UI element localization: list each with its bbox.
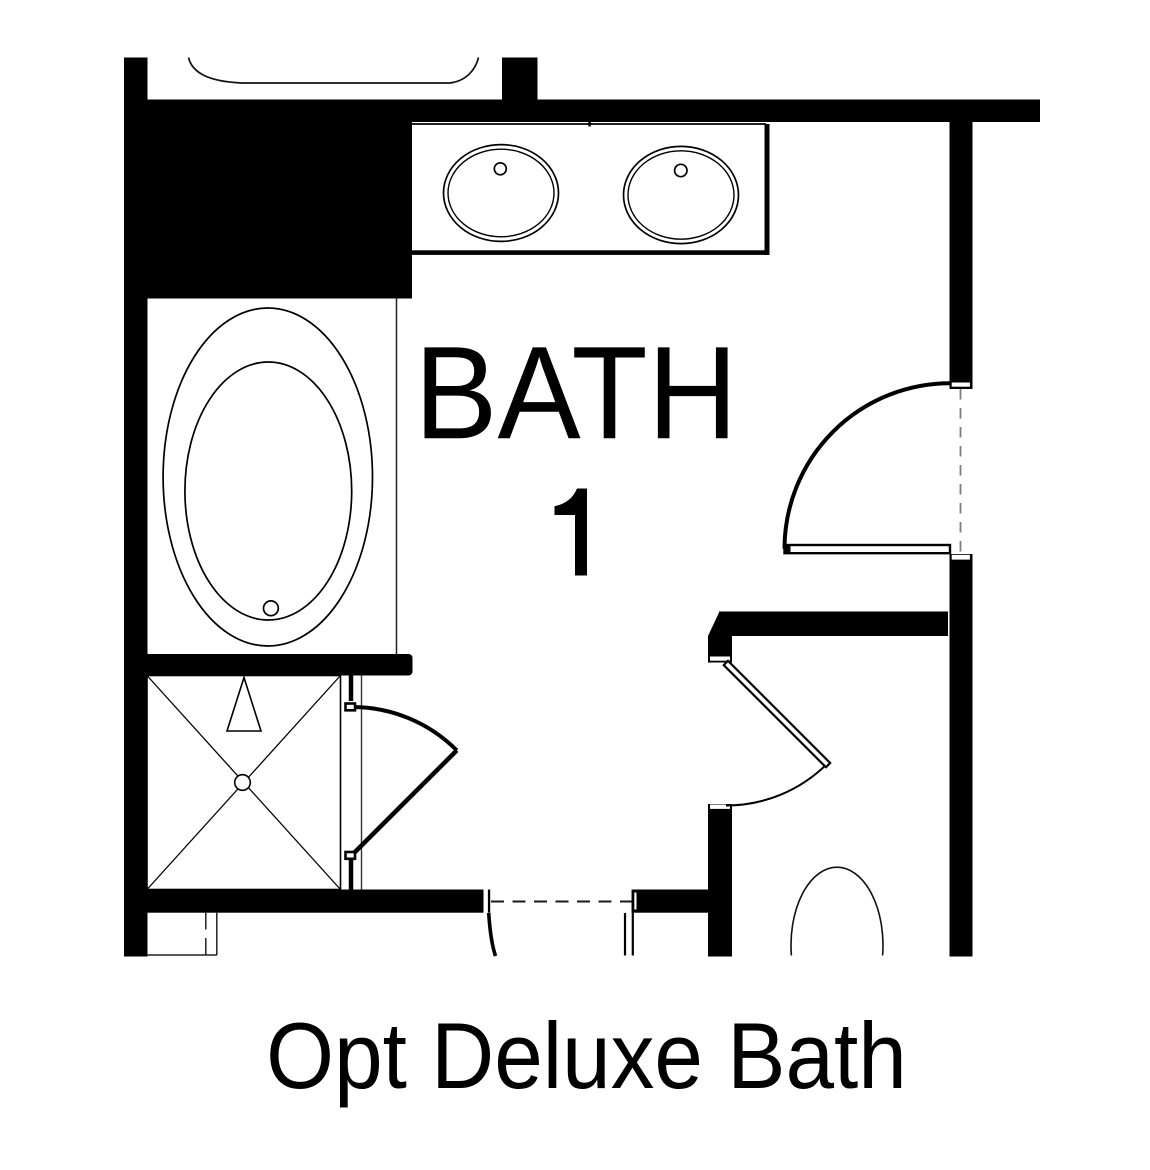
svg-text:Opt Deluxe Bath: Opt Deluxe Bath (266, 1004, 907, 1109)
svg-text:BATH: BATH (414, 320, 737, 467)
